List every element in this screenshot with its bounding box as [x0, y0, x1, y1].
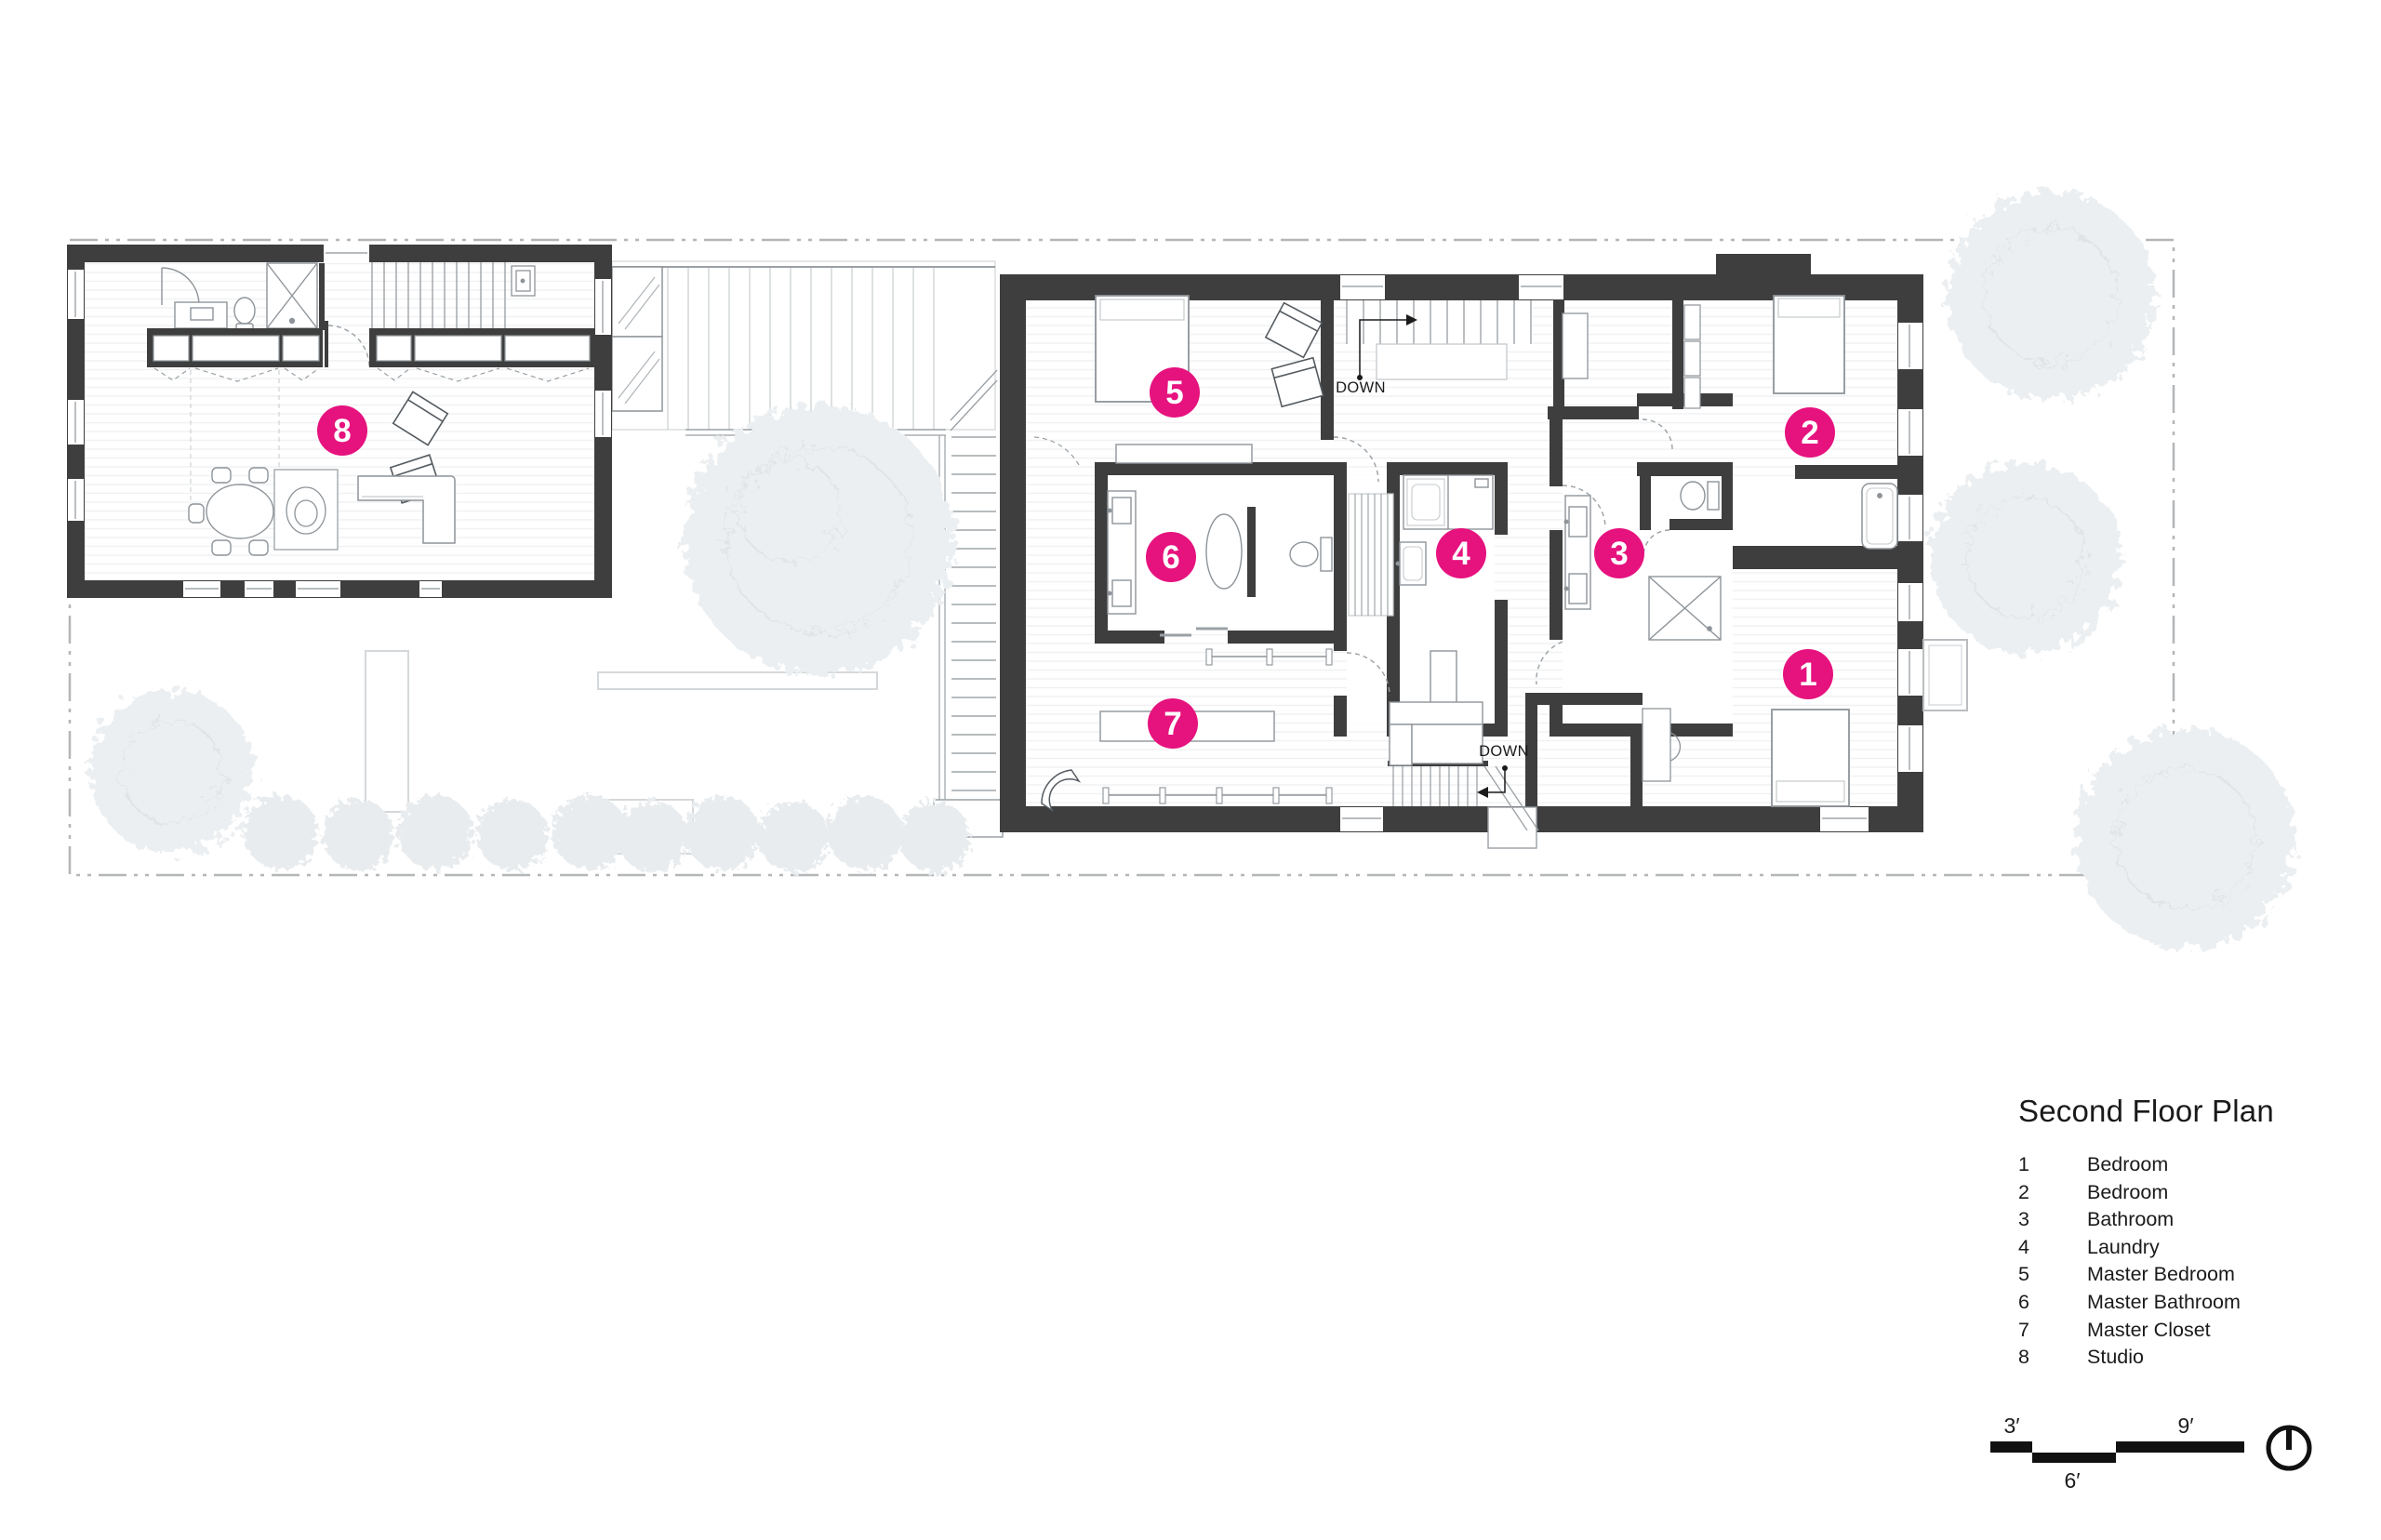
legend-item-number: 5 [2018, 1261, 2087, 1289]
svg-text:1: 1 [1799, 657, 1816, 693]
balcony [1923, 640, 1967, 710]
svg-text:4: 4 [1452, 536, 1470, 572]
tree-icon [684, 405, 953, 674]
room-marker-8: 8 [317, 405, 367, 456]
legend-item-label: Master Bedroom [2087, 1261, 2235, 1289]
studio-rug [274, 470, 338, 550]
bed-bedroom1 [1772, 710, 1849, 806]
shower-icon [1649, 577, 1721, 640]
legend-item: 1Bedroom [2018, 1151, 2353, 1179]
scale-label-6: 6′ [2064, 1468, 2080, 1493]
svg-text:2: 2 [1801, 415, 1818, 451]
legend-item: 7Master Closet [2018, 1317, 2353, 1345]
svg-text:7: 7 [1164, 706, 1181, 742]
room-marker-7: 7 [1148, 698, 1198, 749]
scale-label-3: 3′ [2003, 1414, 2019, 1438]
north-arrow-icon [2268, 1427, 2309, 1468]
scale-label-9: 9′ [2177, 1414, 2193, 1438]
room-marker-3: 3 [1594, 528, 1644, 578]
legend-item: 6Master Bathroom [2018, 1289, 2353, 1317]
legend-item-number: 2 [2018, 1179, 2087, 1207]
tree-icon [1930, 462, 2122, 654]
legend-item-number: 1 [2018, 1151, 2087, 1179]
legend-item-number: 7 [2018, 1317, 2087, 1345]
down-label-upper: DOWN [1336, 379, 1386, 396]
toilet-icon [1681, 482, 1705, 510]
tub-alcove [1862, 484, 1897, 549]
bathtub-icon [1206, 514, 1242, 589]
down-label-lower: DOWN [1479, 743, 1529, 760]
legend-list: 1Bedroom2Bedroom3Bathroom4Laundry5Master… [2018, 1151, 2353, 1372]
svg-text:5: 5 [1165, 375, 1183, 411]
dresser [1116, 445, 1252, 463]
legend-item: 4Laundry [2018, 1234, 2353, 1262]
legend-item-label: Master Bathroom [2087, 1289, 2241, 1317]
room-marker-6: 6 [1146, 532, 1196, 582]
toilet-tank [1708, 482, 1719, 510]
room-marker-1: 1 [1783, 649, 1833, 699]
svg-text:3: 3 [1610, 536, 1628, 572]
legend-item-label: Bathroom [2087, 1206, 2174, 1234]
toilet-icon [234, 298, 255, 324]
legend-item-label: Master Closet [2087, 1317, 2211, 1345]
room-marker-5: 5 [1150, 367, 1200, 418]
legend: Second Floor Plan 1Bedroom2Bedroom3Bathr… [2018, 1094, 2353, 1372]
legend-item-label: Bedroom [2087, 1179, 2168, 1207]
svg-text:6: 6 [1162, 539, 1179, 576]
legend-item: 3Bathroom [2018, 1206, 2353, 1234]
bedroom2-closet [1684, 305, 1700, 408]
page-title: Second Floor Plan [2018, 1094, 2353, 1129]
desk [1643, 709, 1670, 781]
tree-icon [90, 690, 254, 854]
legend-item-label: Laundry [2087, 1234, 2160, 1262]
stair-exit [1488, 807, 1536, 848]
toilet-tank [1321, 538, 1332, 571]
scale-bar: 3′ 9′ 6′ [1990, 1414, 2244, 1493]
legend-item: 2Bedroom [2018, 1179, 2353, 1207]
studio-sink [512, 266, 535, 296]
toilet-icon [1290, 542, 1318, 566]
chimney [1716, 254, 1811, 278]
legend-item-number: 3 [2018, 1206, 2087, 1234]
room-marker-4: 4 [1436, 528, 1486, 578]
room-marker-2: 2 [1785, 407, 1835, 458]
exterior-stairs [934, 370, 1003, 837]
legend-item-number: 8 [2018, 1344, 2087, 1372]
tree-icon [1947, 192, 2155, 400]
legend-item-number: 6 [2018, 1289, 2087, 1317]
legend-item: 5Master Bedroom [2018, 1261, 2353, 1289]
svg-text:8: 8 [333, 413, 351, 449]
bush-row [244, 795, 970, 872]
floor-plan-page: DOWN [0, 0, 2381, 1540]
bed-bedroom2 [1774, 296, 1844, 393]
studio-shower [267, 263, 317, 328]
linen-shelves [1349, 494, 1393, 616]
legend-item-label: Bedroom [2087, 1151, 2168, 1179]
hall-bench [1563, 313, 1588, 378]
glass-connector [612, 267, 662, 411]
legend-item-label: Studio [2087, 1344, 2144, 1372]
legend-item: 8Studio [2018, 1344, 2353, 1372]
tree-icon [2076, 729, 2295, 949]
legend-item-number: 4 [2018, 1234, 2087, 1262]
